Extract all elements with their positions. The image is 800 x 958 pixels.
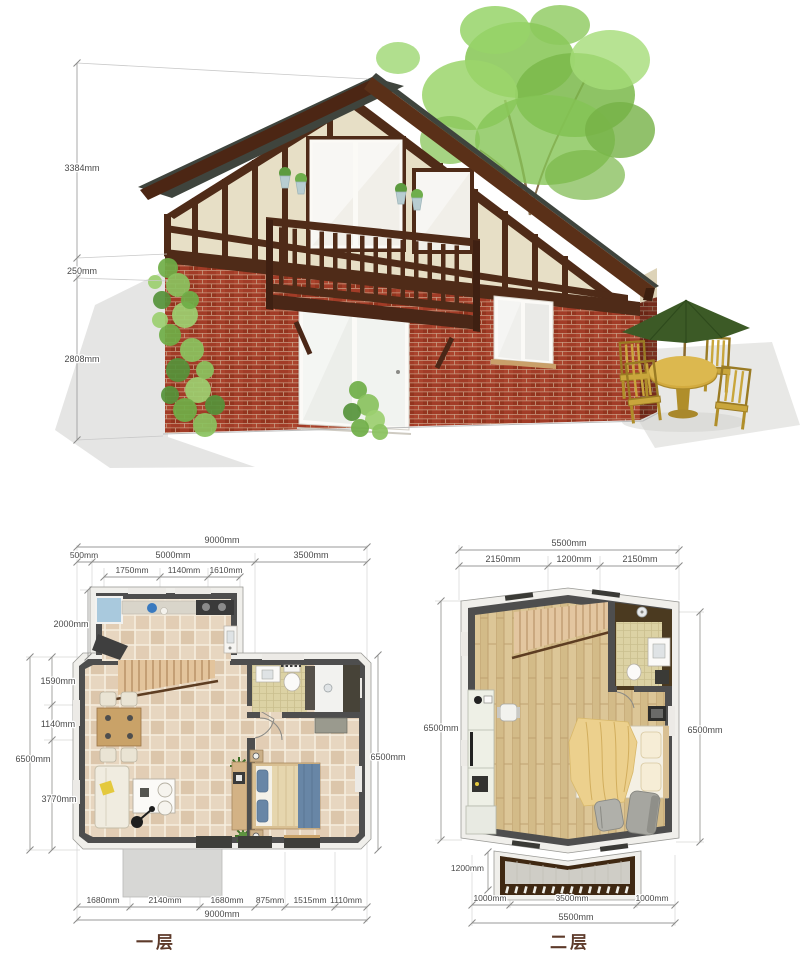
baluster xyxy=(387,238,392,296)
dim-label: 1200mm xyxy=(451,863,484,873)
baluster xyxy=(306,230,311,288)
dim-label: 9000mm xyxy=(204,909,239,919)
dim-label: 2000mm xyxy=(53,619,88,629)
ivy-blob xyxy=(196,361,214,379)
thresholds xyxy=(196,835,320,848)
hall-cabinet xyxy=(232,762,247,830)
floor-lamp xyxy=(131,816,143,828)
baluster xyxy=(293,229,298,287)
dim-label: 1110mm xyxy=(330,895,362,905)
pillow xyxy=(257,800,268,822)
dim-label: 1000mm xyxy=(473,893,506,903)
timber-stud xyxy=(252,160,258,260)
dim-label: 1140mm xyxy=(168,565,200,575)
baluster xyxy=(428,243,433,301)
dim-label-height-lower: 2808mm xyxy=(64,354,99,364)
dim-label-height-upper: 3384mm xyxy=(64,163,99,173)
ivy-blob xyxy=(152,312,168,328)
ivy-blob xyxy=(153,291,171,309)
pot xyxy=(147,603,157,613)
foliage-blob xyxy=(530,5,590,45)
dining-table xyxy=(97,708,141,746)
baluster xyxy=(401,240,406,298)
baluster xyxy=(414,241,419,299)
pouf xyxy=(158,783,172,797)
foliage-blob xyxy=(376,42,420,74)
dim-label: 5500mm xyxy=(558,912,593,922)
ivy-blob xyxy=(148,275,162,289)
foliage-blob xyxy=(585,102,655,158)
bed-runner xyxy=(298,764,320,828)
dim-label: 3770mm xyxy=(41,794,76,804)
floor-plan-first: 9000mm 500mm 5000mm 3500mm 1750mm 1140mm… xyxy=(15,535,405,952)
blanket xyxy=(569,718,637,806)
pillow xyxy=(641,732,661,758)
door-handle xyxy=(396,370,400,374)
baluster xyxy=(279,227,284,285)
baluster xyxy=(441,244,446,302)
dim-label: 2150mm xyxy=(622,554,657,564)
ivy-blob xyxy=(181,291,199,309)
baluster xyxy=(333,233,338,291)
baluster xyxy=(360,236,365,294)
dim-label: 6500mm xyxy=(370,752,405,762)
dim-label: 6500mm xyxy=(687,725,722,735)
dim-label: 1680mm xyxy=(210,895,243,905)
storage xyxy=(466,806,496,834)
ivy-blob xyxy=(372,424,388,440)
toilet xyxy=(284,673,300,691)
elevation-view: 3384mm 250mm 2808mm xyxy=(55,5,800,468)
desk-chair xyxy=(497,704,520,721)
stove xyxy=(196,600,234,615)
dim-label: 1200mm xyxy=(556,554,591,564)
ivy-blob xyxy=(166,358,190,382)
dim-label: 3500mm xyxy=(293,550,328,560)
dim-label: 2140mm xyxy=(148,895,181,905)
timber-stud xyxy=(532,234,538,291)
lamp xyxy=(253,753,259,759)
kitchen-window xyxy=(96,597,122,623)
timber-stud xyxy=(192,198,198,253)
dim-label: 6500mm xyxy=(423,723,458,733)
foliage-blob xyxy=(545,150,625,200)
dim-label: 500mm xyxy=(70,550,98,560)
timber-stud xyxy=(562,256,568,295)
floor-label-first: 一层 xyxy=(136,933,176,952)
dim-label: 1610mm xyxy=(209,565,242,575)
porch xyxy=(123,849,222,897)
dim-label-band: 250mm xyxy=(67,266,97,276)
toilet xyxy=(627,664,641,680)
pillow xyxy=(257,770,268,792)
dim-label: 1515mm xyxy=(293,895,326,905)
ivy-blob xyxy=(343,403,361,421)
floor-label-second: 二层 xyxy=(550,933,590,952)
sofa xyxy=(95,766,129,828)
dim-label: 1680mm xyxy=(86,895,119,905)
dresser xyxy=(315,718,347,733)
lower-right-window xyxy=(491,296,556,369)
timber-stud xyxy=(502,211,508,288)
dim-label: 9000mm xyxy=(204,535,239,545)
scene-svg: 3384mm 250mm 2808mm xyxy=(0,0,800,958)
floor-plan-second: 5500mm 2150mm 1200mm 2150mm 6500mm 1200m… xyxy=(423,538,722,952)
dim-label: 1140mm xyxy=(41,719,75,729)
baluster xyxy=(374,237,379,295)
tv xyxy=(470,732,473,766)
ivy-blob xyxy=(351,419,369,437)
ivy-blob xyxy=(205,395,225,415)
ivy-blob xyxy=(193,413,217,437)
timber-stud xyxy=(222,179,228,257)
ivy-blob xyxy=(180,338,204,362)
dim-label: 875mm xyxy=(256,895,284,905)
foliage-blob xyxy=(460,6,530,54)
dim-label: 3500mm xyxy=(555,893,588,903)
dim-label: 5500mm xyxy=(551,538,586,548)
pillow xyxy=(641,763,661,791)
dim-label: 2150mm xyxy=(485,554,520,564)
ivy-blob xyxy=(161,386,179,404)
pouf xyxy=(158,801,172,815)
dim-label: 1750mm xyxy=(115,565,148,575)
dim-label: 6500mm xyxy=(15,754,50,764)
baluster xyxy=(320,232,325,290)
baluster xyxy=(347,234,352,292)
dim-label: 1590mm xyxy=(40,676,75,686)
dim-label: 5000mm xyxy=(155,550,190,560)
baluster xyxy=(455,245,460,303)
foliage-blob xyxy=(570,30,650,90)
bedroom-second xyxy=(569,706,669,806)
ivy-blob xyxy=(173,398,197,422)
left-cabinets xyxy=(466,690,496,834)
architectural-sheet: 3384mm 250mm 2808mm xyxy=(0,0,800,958)
